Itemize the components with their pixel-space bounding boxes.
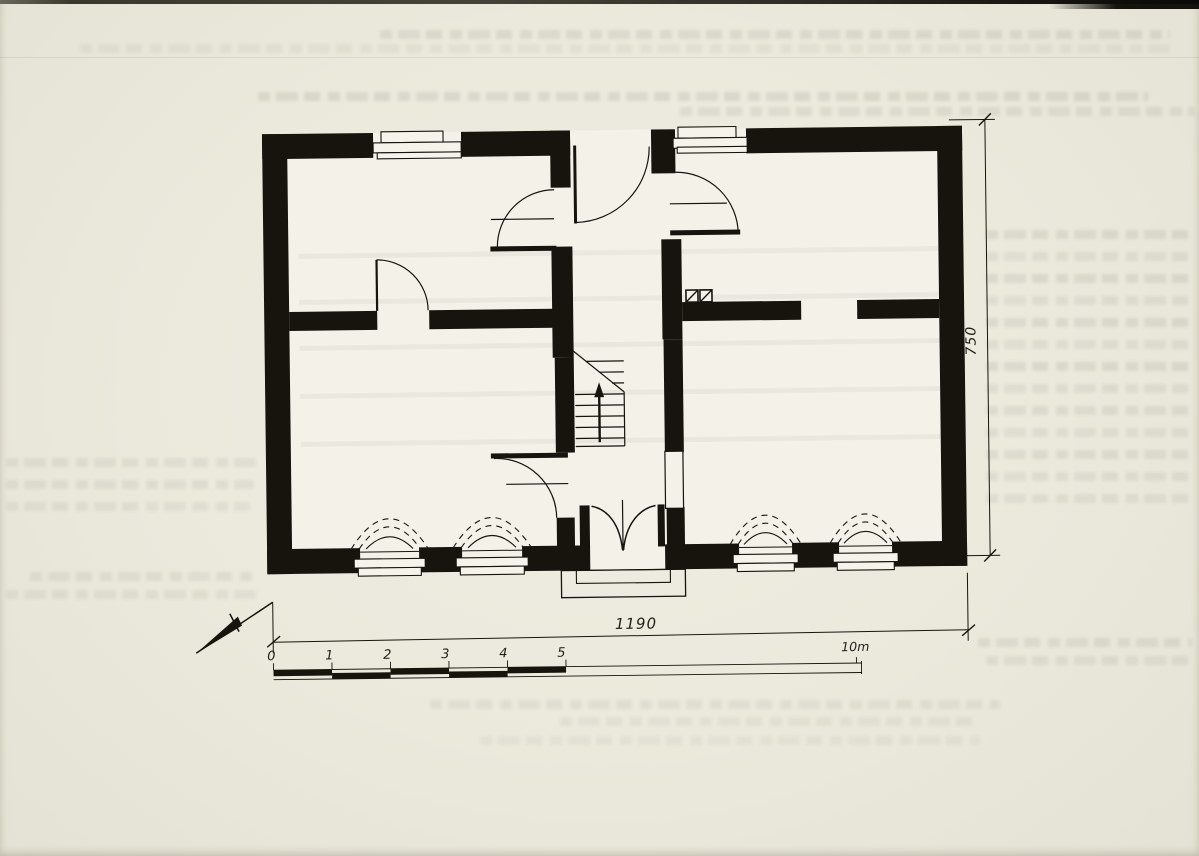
window-top-right bbox=[673, 126, 747, 153]
floor-plan-drawing: 1190 750 bbox=[0, 0, 1199, 856]
scale-label-0: 0 bbox=[267, 649, 275, 664]
scale-bar: 0 1 2 3 4 5 10m bbox=[267, 639, 870, 681]
dimension-height-label: 750 bbox=[963, 326, 979, 356]
dimension-width-label: 1190 bbox=[615, 615, 657, 634]
scale-label-5: 5 bbox=[557, 646, 565, 661]
scale-label-4: 4 bbox=[499, 646, 507, 661]
wall-niche bbox=[665, 451, 684, 508]
scale-label-10m: 10m bbox=[841, 639, 869, 654]
north-arrow-icon bbox=[195, 602, 274, 654]
scale-label-3: 3 bbox=[441, 647, 449, 662]
scale-label-1: 1 bbox=[325, 648, 333, 663]
scanned-page: 1190 750 bbox=[0, 0, 1199, 856]
entrance-steps bbox=[561, 569, 685, 598]
scale-label-2: 2 bbox=[383, 648, 391, 663]
